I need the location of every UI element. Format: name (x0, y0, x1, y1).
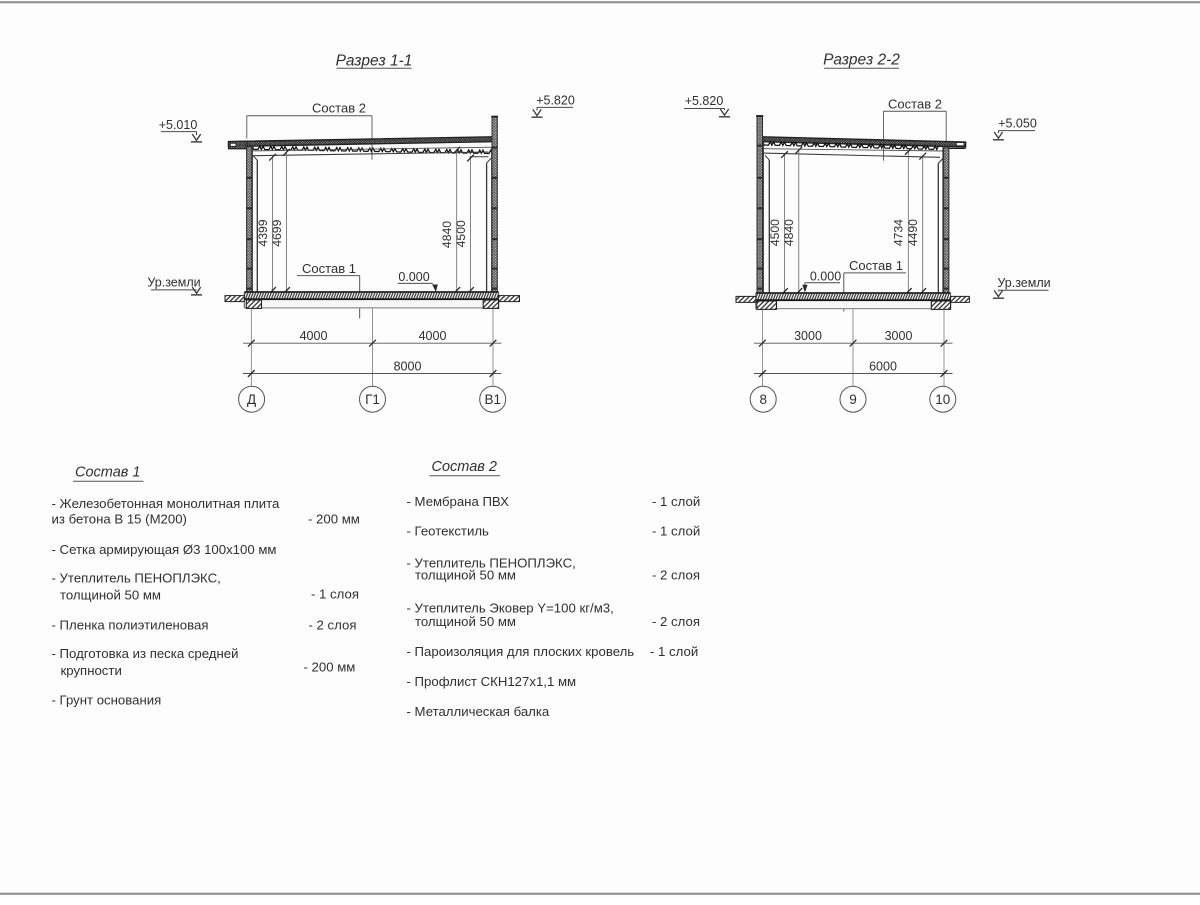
svg-text:Разрез 1-1: Разрез 1-1 (336, 53, 413, 70)
svg-text:- 2 слоя: - 2 слоя (652, 568, 700, 583)
svg-text:3000: 3000 (885, 329, 913, 343)
svg-text:Состав 1: Состав 1 (75, 465, 140, 481)
svg-text:- Подготовка из песка средней: - Подготовка из песка средней (52, 646, 239, 661)
svg-text:- Профлист СКН127х1,1 мм: - Профлист СКН127х1,1 мм (407, 674, 577, 689)
svg-text:4500: 4500 (454, 220, 468, 247)
svg-text:4399: 4399 (256, 219, 270, 246)
svg-text:+5.820: +5.820 (685, 94, 724, 108)
svg-text:4840: 4840 (440, 221, 454, 248)
svg-text:Ур.земли: Ур.земли (997, 276, 1050, 290)
svg-text:- 200 мм: - 200 мм (304, 660, 356, 675)
svg-text:8000: 8000 (394, 359, 422, 373)
svg-text:Состав 2: Состав 2 (888, 97, 942, 112)
svg-text:- Железобетонная монолитная п: - Железобетонная монолитная плита (52, 496, 281, 511)
svg-text:толщиной 50 мм: толщиной 50 мм (60, 588, 161, 603)
svg-text:10: 10 (935, 392, 950, 407)
svg-text:Д: Д (247, 392, 256, 407)
svg-text:толщиной 50 мм: толщиной 50 мм (415, 568, 516, 583)
svg-text:3000: 3000 (794, 329, 822, 343)
svg-text:Г1: Г1 (365, 392, 380, 407)
svg-text:- 1 слой: - 1 слой (652, 524, 700, 539)
svg-text:- Металлическая балка: - Металлическая балка (407, 704, 550, 719)
svg-text:Состав 2: Состав 2 (312, 101, 366, 116)
svg-text:- 2 слоя: - 2 слоя (652, 614, 700, 629)
svg-text:Состав 1: Состав 1 (302, 261, 356, 276)
svg-text:4500: 4500 (768, 219, 782, 246)
svg-text:из бетона В 15 (М200): из бетона В 15 (М200) (52, 512, 187, 527)
svg-text:- 1 слой: - 1 слой (650, 644, 698, 659)
svg-text:6000: 6000 (869, 359, 897, 373)
svg-text:- 200 мм: - 200 мм (308, 512, 360, 527)
svg-text:4490: 4490 (906, 219, 920, 246)
svg-text:- Пароизоляция для плоских кро: - Пароизоляция для плоских кровель (407, 644, 635, 659)
svg-text:4699: 4699 (270, 219, 284, 246)
svg-text:+5.820: +5.820 (536, 94, 575, 108)
svg-text:Разрез 2-2: Разрез 2-2 (823, 52, 900, 69)
svg-text:Состав 2: Состав 2 (432, 459, 497, 475)
svg-text:0.000: 0.000 (398, 270, 429, 284)
svg-text:- Пленка полиэтиленовая: - Пленка полиэтиленовая (52, 618, 209, 633)
svg-text:- Геотекстиль: - Геотекстиль (407, 524, 490, 539)
svg-text:Состав 1: Состав 1 (849, 258, 903, 273)
svg-text:- Утеплитель ПЕНОПЛЭКС,: - Утеплитель ПЕНОПЛЭКС, (52, 571, 221, 586)
svg-text:0.000: 0.000 (810, 269, 841, 283)
svg-text:4734: 4734 (892, 219, 906, 246)
svg-text:+5.050: +5.050 (998, 116, 1037, 130)
svg-text:8: 8 (759, 392, 767, 407)
svg-text:4000: 4000 (419, 329, 447, 343)
svg-text:- 1 слой: - 1 слой (652, 494, 700, 509)
svg-text:+5.010: +5.010 (159, 118, 198, 132)
svg-text:9: 9 (849, 392, 857, 407)
svg-text:- 2 слоя: - 2 слоя (309, 618, 357, 633)
svg-text:толщиной 50 мм: толщиной 50 мм (415, 614, 516, 629)
svg-text:- 1 слоя: - 1 слоя (311, 587, 359, 602)
svg-text:- Мембрана ПВХ: - Мембрана ПВХ (407, 494, 510, 509)
svg-text:В1: В1 (484, 392, 501, 407)
svg-text:крупности: крупности (61, 663, 122, 678)
svg-text:- Сетка армирующая Ø3 100х100: - Сетка армирующая Ø3 100х100 мм (52, 542, 277, 557)
svg-text:- Грунт основания: - Грунт основания (52, 693, 162, 708)
svg-text:4000: 4000 (300, 329, 328, 343)
svg-text:4840: 4840 (782, 219, 796, 246)
